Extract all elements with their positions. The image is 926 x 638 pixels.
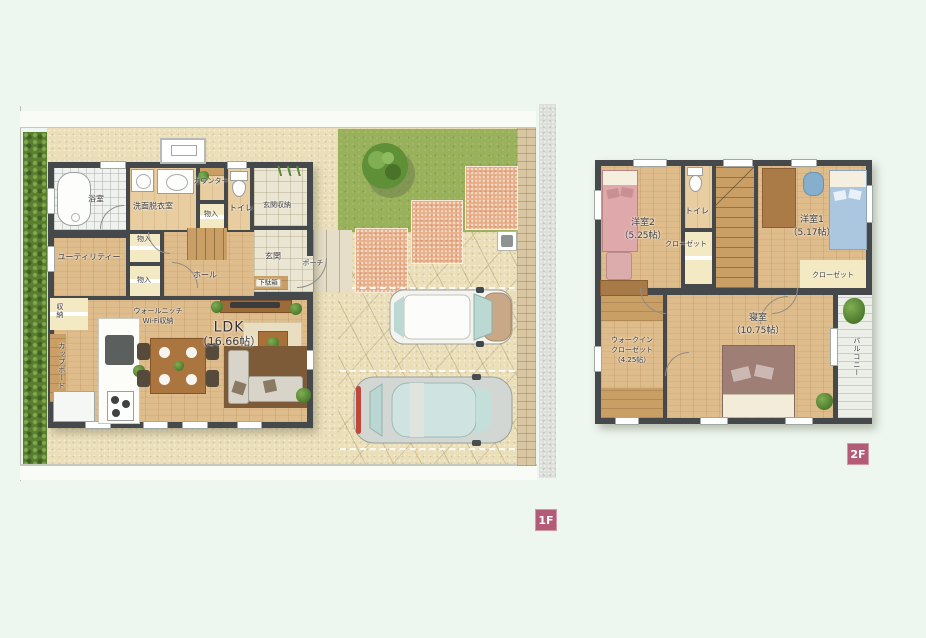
- sofa-back: [228, 350, 249, 404]
- balcony-door: [830, 328, 838, 366]
- plate-4: [186, 374, 197, 385]
- floor-badge-2f: 2F: [847, 443, 869, 465]
- vanity-bowl: [166, 174, 188, 191]
- label-closet-a: クローゼット: [665, 241, 707, 249]
- parking-line-3: [340, 448, 515, 450]
- bed2-headboard: [603, 171, 637, 185]
- label-wall-niche: ウォールニッチ: [134, 308, 183, 316]
- bathtub-drain: [71, 213, 80, 222]
- window-ldk-bottom-2: [143, 421, 168, 429]
- sidewalk-brick-strip: [517, 128, 536, 466]
- label-storage-3: 物入: [137, 277, 151, 285]
- label-balcony: バルコニー: [852, 337, 860, 377]
- room-utility: [54, 238, 126, 296]
- terracotta-paver-3: [355, 228, 408, 293]
- room-entrance-storage: [254, 168, 307, 226]
- terrace-glass-door: [53, 391, 95, 422]
- bedroom1-chair: [803, 172, 824, 196]
- label-wifi-storage: Wi-Fi収納: [143, 318, 174, 326]
- label-wic-line1: ウォークイン: [611, 337, 653, 345]
- dining-chair-4: [206, 370, 219, 387]
- table-plant: [174, 361, 184, 371]
- garden-tree: [355, 132, 419, 206]
- window-2f-top-2: [723, 159, 753, 167]
- bedroom1-wardrobe: [762, 168, 796, 228]
- label-entrance-storage: 玄関収納: [263, 202, 291, 210]
- bed1-headboard: [830, 171, 866, 187]
- bed1-pillow-1: [833, 190, 846, 201]
- label-counter: カウンター: [194, 178, 229, 186]
- window-2f-bottom-1: [700, 417, 728, 425]
- kitchen-sink: [105, 335, 134, 365]
- master-pillow-2: [754, 364, 774, 379]
- window-toilet-top: [227, 161, 247, 169]
- label-bedroom1-size: （5.17帖）: [788, 229, 835, 239]
- stairs-1f: [187, 228, 227, 260]
- bed1-pillow-2: [848, 189, 862, 200]
- window-ldk-bottom-3: [182, 421, 208, 429]
- window-2f-left-1: [594, 190, 602, 220]
- label-shoe-cabinet: 下駄箱: [255, 278, 281, 287]
- label-closet-small: 収納: [55, 303, 63, 319]
- label-storage-2: 物入: [137, 236, 151, 244]
- car-silver: [352, 372, 514, 448]
- window-bath-top: [100, 161, 126, 169]
- window-ldk-right: [306, 350, 314, 370]
- plate-1: [159, 347, 170, 358]
- label-closet-b: クローゼット: [812, 272, 854, 280]
- bed-master: [722, 345, 795, 417]
- road-strip: [539, 104, 556, 478]
- window-wic-bottom: [615, 417, 639, 425]
- plate-2: [186, 347, 197, 358]
- window-ldk-bottom-4: [237, 421, 262, 429]
- label-wic-line2: クローゼット: [611, 347, 653, 355]
- site-boundary-bottom: [20, 464, 537, 480]
- floor-plan-canvas: 浴室 洗面脱衣室 カウンター トイレ 玄関収納 物入 物入 物入 ユーティリティ…: [0, 0, 926, 638]
- washing-machine: [131, 169, 154, 192]
- label-master-size: （10.75帖）: [732, 327, 785, 337]
- window-2f-left-2: [594, 346, 602, 372]
- master-pillow-1: [731, 366, 751, 382]
- terracotta-paver-1: [465, 166, 518, 230]
- label-ldk: LDK: [214, 320, 245, 335]
- sofa-cushion-2: [263, 379, 277, 393]
- bay-window: [160, 138, 206, 164]
- stove-burner-2: [122, 400, 130, 408]
- stone-ornament-top: [501, 235, 513, 247]
- stove-burner-1: [111, 396, 119, 404]
- dining-chair-1: [137, 343, 150, 360]
- floor-badge-1f: 1F: [535, 509, 557, 531]
- kitchen-stove: [107, 391, 134, 421]
- window-2f-bottom-2: [785, 417, 813, 425]
- label-porch: ポーチ: [303, 260, 324, 268]
- label-wic-size: （4.25帖）: [614, 357, 651, 365]
- label-ldk-size: （16.66帖）: [197, 336, 262, 348]
- label-bedroom1: 洋室1: [800, 216, 824, 226]
- umbrella-rack: [276, 166, 302, 176]
- vanity-sink: [157, 169, 194, 194]
- terracotta-paver-2: [411, 200, 463, 264]
- window-2f-top-3: [791, 159, 817, 167]
- wic-shelf-bottom: [601, 388, 663, 418]
- window-bath-left: [47, 188, 55, 214]
- window-2f-top-1: [633, 159, 667, 167]
- bed2-pillow-1: [606, 188, 620, 199]
- stone-ornament: [497, 231, 517, 251]
- stove-burner-3: [112, 409, 120, 417]
- label-cupboard: カップボード: [57, 342, 65, 390]
- label-washroom: 洗面脱衣室: [133, 203, 173, 212]
- car-white: [388, 286, 514, 348]
- label-master: 寝室: [749, 314, 767, 324]
- label-bedroom2: 洋室2: [631, 219, 655, 229]
- label-bedroom2-size: （5.25帖）: [619, 232, 666, 242]
- washer-drum: [136, 174, 151, 189]
- label-toilet-1f: トイレ: [229, 205, 253, 214]
- site-boundary-top: [20, 111, 536, 128]
- site-boundary-left: [20, 106, 21, 481]
- master-bed-foot: [723, 394, 794, 417]
- plate-3: [159, 374, 170, 385]
- label-entrance: 玄関: [265, 253, 281, 262]
- dining-chair-2: [137, 370, 150, 387]
- label-toilet-2f: トイレ: [685, 208, 709, 217]
- window-utility-left: [47, 246, 55, 272]
- bathtub: [57, 172, 91, 226]
- label-bath: 浴室: [88, 196, 104, 205]
- bay-window-pane: [171, 145, 197, 156]
- label-storage-1: 物入: [204, 211, 218, 219]
- label-hall: ホール: [193, 272, 217, 281]
- bedroom2-stool: [606, 252, 632, 280]
- stairs-2f-diagonal: [716, 166, 754, 206]
- hedge-strip: [23, 132, 47, 464]
- bed2-pillow-2: [620, 187, 633, 198]
- tv: [230, 302, 280, 308]
- label-utility: ユーティリティー: [57, 254, 120, 263]
